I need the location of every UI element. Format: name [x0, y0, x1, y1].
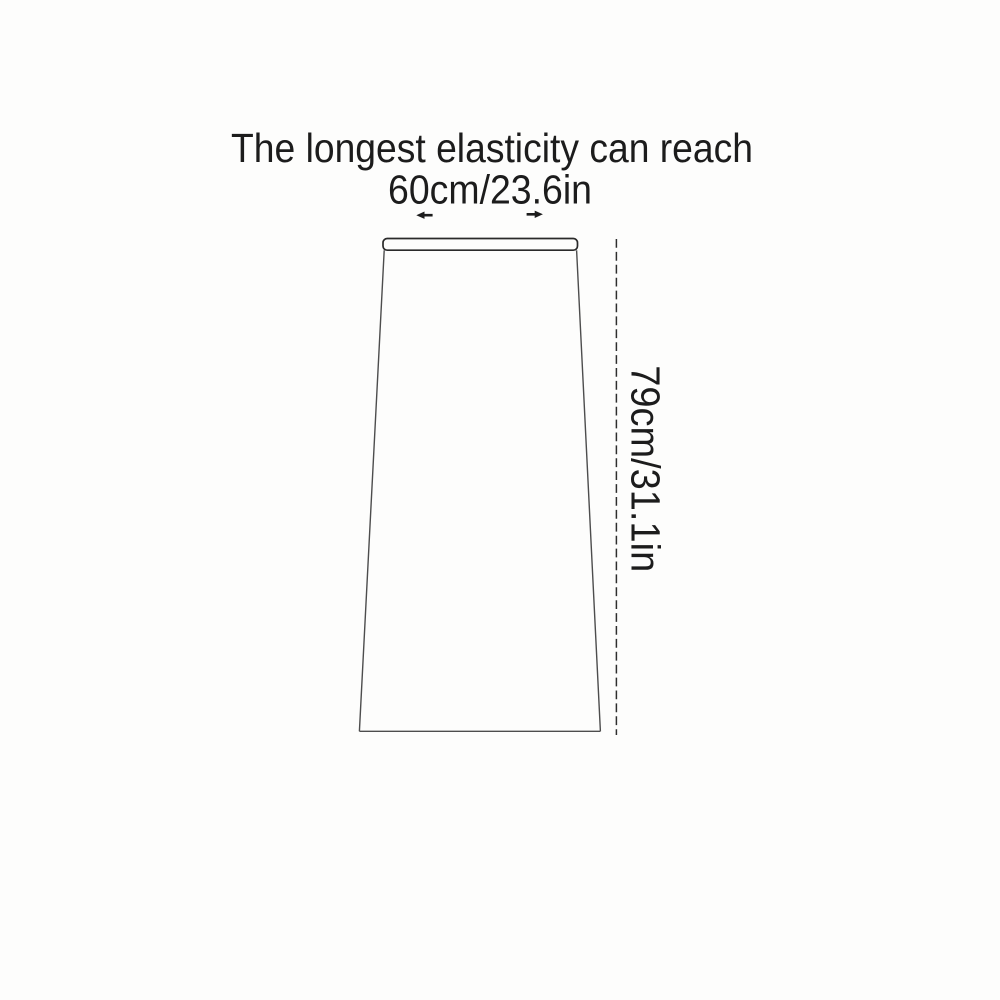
svg-text:60cm/23.6in: 60cm/23.6in	[388, 167, 592, 213]
svg-text:The longest elasticity can rea: The longest elasticity can reach	[231, 125, 753, 171]
svg-text:79cm/31.1in: 79cm/31.1in	[623, 365, 669, 572]
